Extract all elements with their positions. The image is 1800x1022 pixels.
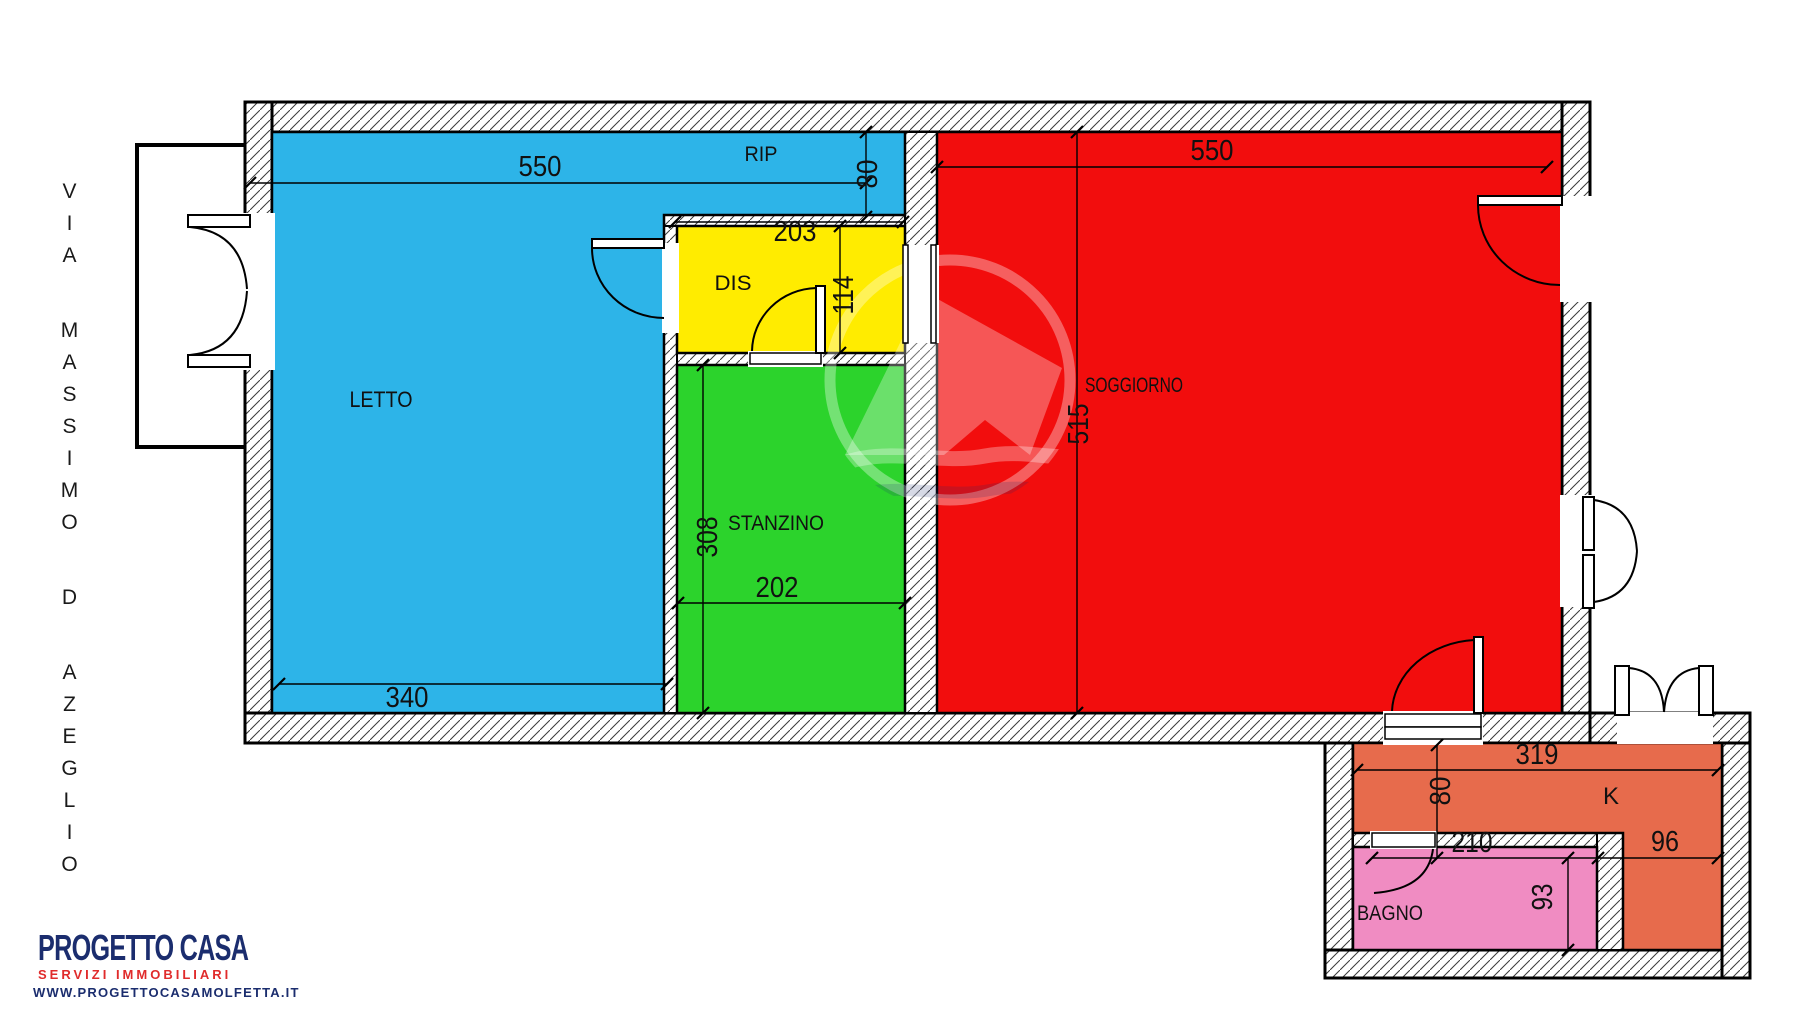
agency-logo: PROGETTO CASA SERVIZI IMMOBILIARI WWW.PR… [33,929,313,1000]
left-window-leaf-top [188,215,250,227]
wall-annex-left [1325,743,1353,978]
dim-label-soggiorno-depth: 515 [1063,404,1095,445]
dim-label-rip-depth: 80 [852,160,884,189]
opening-soggiorno-door [1560,196,1592,302]
soggiorno-cucina-door-leaf [1474,637,1483,713]
cucina-window-leaf-left [1615,666,1629,715]
dim-label-stanzino-width: 202 [756,572,799,604]
dim-label-bagno-width: 210 [1452,827,1493,859]
dim-label-letto-rip-width: 550 [519,151,562,183]
letto-dis-door-leaf [592,239,664,248]
room-label-stanzino: STANZINO [728,512,824,535]
opening-letto-dis-door [662,243,679,333]
soggiorno-window-leaf-top [1583,497,1594,550]
floor-plan: 550 80 203 114 340 308 202 550 515 319 8… [0,0,1800,1022]
bagno-door-sill [1372,833,1435,847]
room-label-soggiorno: SOGGIORNO [1085,374,1183,397]
soggiorno-door-leaf [1478,196,1562,205]
soggiorno-cucina-door-sill-2 [1385,727,1481,739]
dim-label-cucina-depth: 80 [1425,777,1457,806]
dis-stanzino-door-leaf [816,286,825,353]
room-label-cucina: K [1603,783,1619,810]
dim-label-cucina-side: 96 [1651,826,1679,858]
wall-left [245,102,272,743]
dis-stanzino-door-sill [750,353,821,364]
dim-label-soggiorno-width: 550 [1191,135,1234,167]
wall-annex-right [1722,713,1750,978]
dim-label-cucina-width: 319 [1516,739,1559,771]
cucina-window-leaf-right [1699,666,1713,715]
soggiorno-window-leaf-bottom [1583,555,1594,608]
left-window-leaf-bottom [188,355,250,367]
agency-name: PROGETTO CASA [38,929,248,967]
dim-label-letto-width: 340 [386,682,429,714]
dim-label-dis-depth: 114 [828,276,860,315]
dim-label-stanzino-depth: 308 [692,517,724,558]
opening-cucina-window [1617,712,1713,744]
wall-top [245,102,1590,132]
wall-right [1562,102,1590,715]
room-bagno [1353,847,1597,950]
room-label-dis: DIS [715,272,752,295]
room-label-bagno: BAGNO [1357,902,1423,925]
street-name-label: VIA MASSIMO D AZEGLIO [57,180,81,885]
wall-bagno-right [1597,833,1623,950]
agency-tagline: SERVIZI IMMOBILIARI [38,967,338,982]
balcony-left [137,145,250,447]
dim-label-dis-width: 203 [774,216,817,248]
agency-website: WWW.PROGETTOCASAMOLFETTA.IT [33,985,313,1000]
wall-annex-bottom [1325,950,1750,978]
soggiorno-cucina-door-sill-1 [1385,714,1481,727]
passage-jamb-right [931,245,936,343]
passage-jamb-left [903,245,908,343]
room-label-letto: LETTO [350,387,413,412]
dim-label-bagno-depth: 93 [1527,884,1559,911]
room-label-rip: RIP [745,143,778,166]
